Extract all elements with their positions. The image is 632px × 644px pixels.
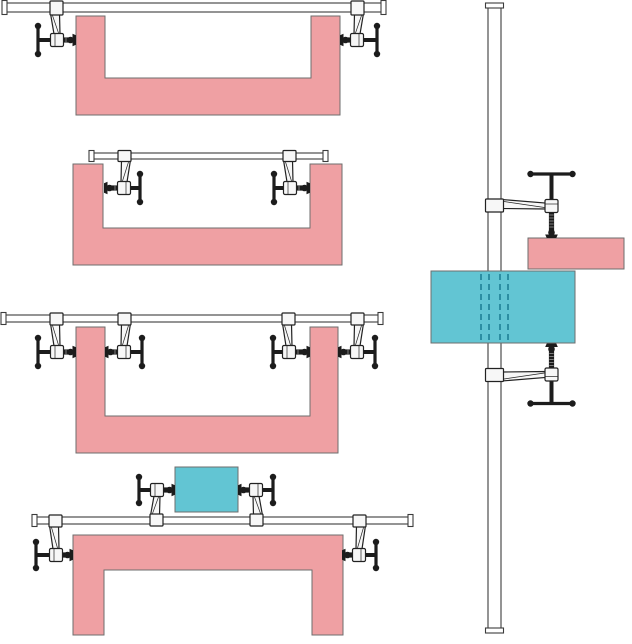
clamp-spindle-housing <box>283 346 296 359</box>
clamp-pressure-pad <box>307 182 311 195</box>
workpiece-teal <box>175 467 238 512</box>
clamp-spindle-housing <box>250 484 263 497</box>
clamp-pressure-pad <box>545 235 558 239</box>
rail-end-cap <box>2 1 7 15</box>
clamp-rail-sleeve <box>50 313 63 325</box>
clamp-t-handle <box>36 26 39 54</box>
clamp-t-handle <box>531 172 573 175</box>
clamp-t-handle <box>272 174 275 202</box>
clamp-rail-sleeve <box>250 514 263 526</box>
clamp-spindle-housing <box>50 549 63 562</box>
clamp-spindle <box>130 350 141 354</box>
clamp-rail-sleeve <box>351 1 364 15</box>
workpiece-pink <box>528 238 624 269</box>
clamp-spindle <box>365 553 375 557</box>
rail-end-cap <box>486 628 504 633</box>
clamp-rail-sleeve <box>486 199 504 212</box>
clamp-pressure-pad <box>104 182 108 195</box>
rail-end-cap <box>89 151 94 162</box>
rail-end-cap <box>323 151 328 162</box>
clamp-spindle-housing <box>51 346 64 359</box>
rail-end-cap <box>408 515 413 527</box>
clamp-rail-sleeve <box>118 313 131 325</box>
clamp-t-handle <box>138 174 141 202</box>
clamp-pressure-pad <box>238 484 242 497</box>
clamp-t-handle <box>375 26 378 54</box>
clamp-rail-sleeve <box>351 313 364 325</box>
workpiece-pink <box>76 327 338 453</box>
rail-end-cap <box>32 515 37 527</box>
clamp-pressure-pad <box>105 346 109 359</box>
clamp-t-handle <box>36 338 39 366</box>
clamp-t-handle <box>34 542 37 568</box>
clamping-techniques-illustration <box>0 0 632 644</box>
diagram-bridge-and-block-clamped-on-one-rail <box>32 467 413 635</box>
clamp-spindle-housing <box>284 182 297 195</box>
clamp-spindle <box>363 350 374 354</box>
clamp-spindle-housing <box>351 34 364 47</box>
clamp-spindle <box>37 553 50 557</box>
diagram-channel-spread-from-inside <box>73 151 342 266</box>
clamp-spindle <box>275 186 284 190</box>
clamp-t-handle <box>373 338 376 366</box>
clamp-t-handle <box>271 338 274 366</box>
clamp-rail-sleeve <box>283 151 296 162</box>
rail-end-cap <box>1 313 6 325</box>
clamp-spindle-housing <box>118 182 131 195</box>
clamp-pressure-pad <box>73 34 77 47</box>
clamp-rail-sleeve <box>50 1 63 15</box>
clamp-spindle <box>262 488 272 492</box>
workpiece-pink <box>73 535 343 635</box>
workpiece-pink <box>73 164 342 265</box>
clamp-spindle-housing <box>545 200 558 213</box>
clamp-spindle <box>550 381 554 403</box>
rail-end-cap <box>486 3 504 8</box>
diagram-vertical-rail-clamping-stacked-blocks <box>431 3 624 633</box>
clamp-t-handle <box>140 338 143 366</box>
clamp-spindle <box>140 488 151 492</box>
clamp-spindle-housing <box>545 368 558 381</box>
clamp-pressure-pad <box>340 34 344 47</box>
clamp-rail-sleeve <box>150 514 163 526</box>
rail-end-cap <box>381 1 386 15</box>
clamp-pressure-pad <box>338 346 342 359</box>
clamp-pressure-pad <box>307 346 311 359</box>
clamp-rail-sleeve <box>49 515 62 527</box>
clamping-diagram-svg <box>0 0 632 644</box>
workpiece-teal <box>431 271 575 343</box>
clamp-pressure-pad <box>73 346 77 359</box>
clamp-spindle <box>363 38 376 42</box>
clamp-spindle <box>39 38 51 42</box>
clamp-pressure-pad <box>172 484 176 497</box>
clamp-pressure-pad <box>545 344 558 348</box>
clamp-t-handle <box>531 402 573 405</box>
clamp-spindle <box>550 175 554 200</box>
clamp-spindle <box>39 350 51 354</box>
clamp-t-handle <box>271 477 274 503</box>
diagram-channel-walls-clamped-both-sides <box>1 313 383 454</box>
clamp-spindle-housing <box>351 346 364 359</box>
clamp-t-handle <box>374 542 377 568</box>
clamp-rail-sleeve <box>486 369 504 382</box>
diagram-channel-clamped-from-outside <box>2 1 386 116</box>
clamp-spindle-housing <box>51 34 64 47</box>
clamp-spindle-housing <box>151 484 164 497</box>
clamp-rail-sleeve <box>118 151 131 162</box>
clamp-rail-sleeve <box>353 515 366 527</box>
clamp-pressure-pad <box>70 549 74 562</box>
clamp-t-handle <box>137 477 140 503</box>
clamp-rail-sleeve <box>282 313 295 325</box>
clamp-spindle-housing <box>118 346 131 359</box>
clamp-spindle <box>130 186 139 190</box>
workpiece-pink <box>76 16 340 115</box>
rail-end-cap <box>378 313 383 325</box>
clamp-spindle-housing <box>353 549 366 562</box>
clamp-pressure-pad <box>342 549 346 562</box>
clamp-spindle <box>274 350 283 354</box>
